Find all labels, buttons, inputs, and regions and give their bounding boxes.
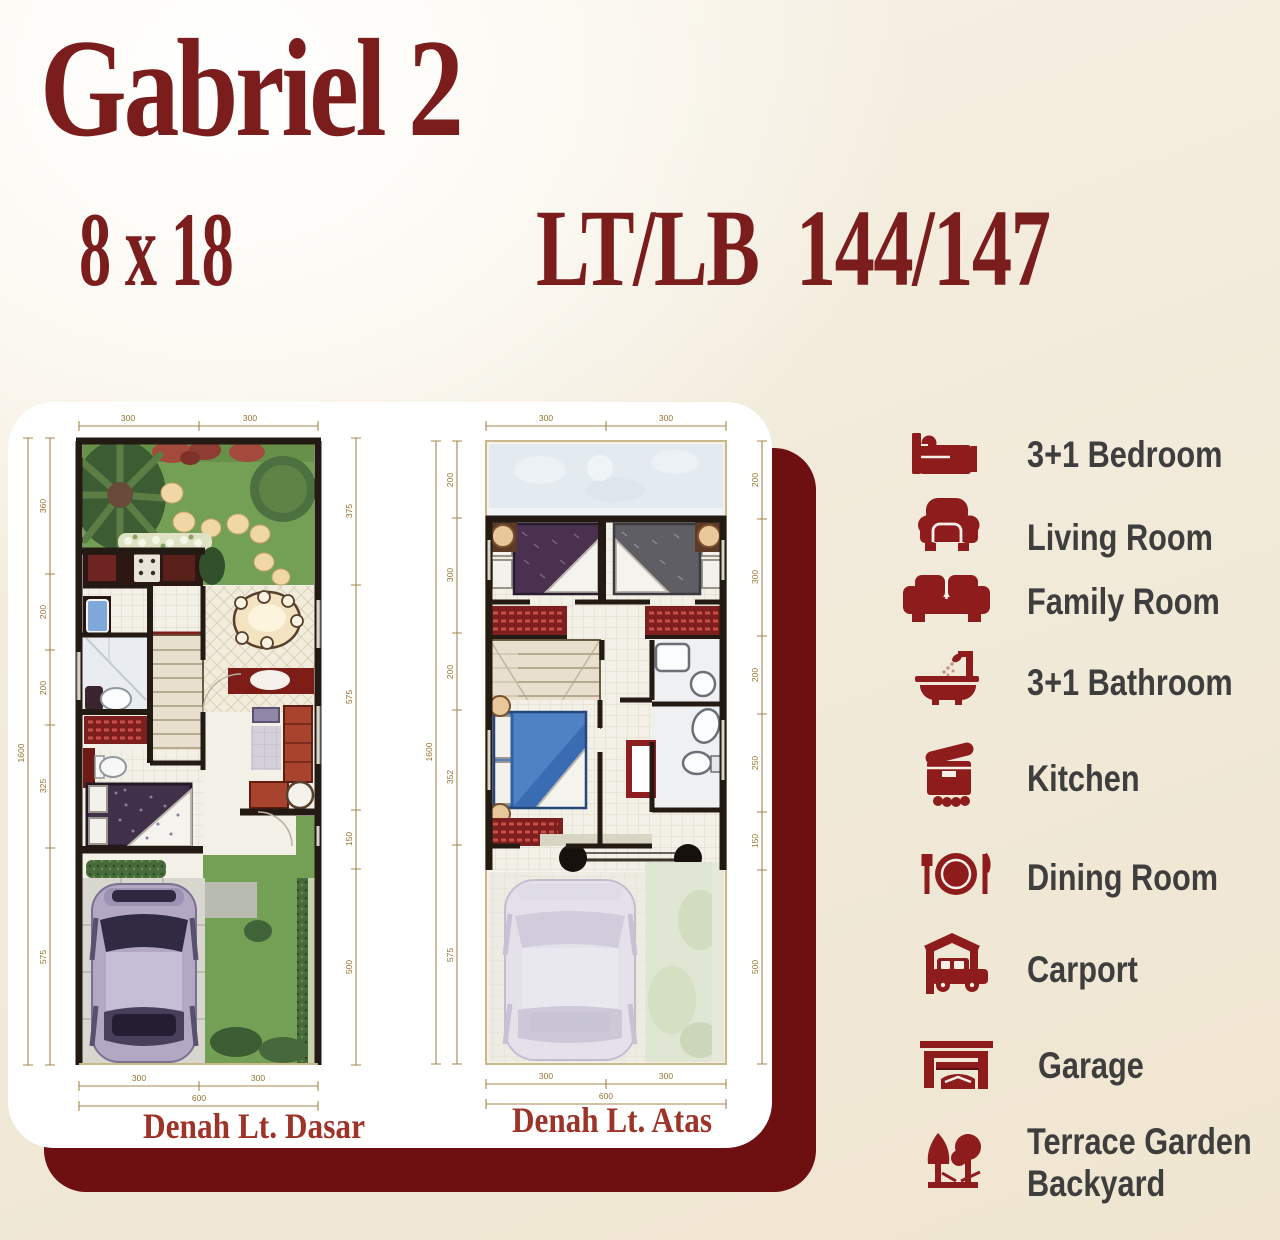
svg-text:200: 200 [38, 605, 48, 619]
svg-text:200: 200 [750, 473, 760, 487]
svg-text:500: 500 [750, 960, 760, 974]
svg-text:300: 300 [659, 1071, 673, 1081]
svg-text:250: 250 [750, 756, 760, 770]
svg-text:Denah Lt. Dasar: Denah Lt. Dasar [143, 1106, 365, 1146]
svg-text:300: 300 [132, 1073, 146, 1083]
svg-text:1600: 1600 [424, 742, 434, 761]
svg-text:Denah Lt. Atas: Denah Lt. Atas [512, 1100, 712, 1140]
svg-text:300: 300 [121, 413, 135, 423]
svg-text:200: 200 [750, 668, 760, 682]
svg-text:300: 300 [659, 413, 673, 423]
svg-text:300: 300 [243, 413, 257, 423]
svg-text:200: 200 [445, 665, 455, 679]
svg-text:360: 360 [38, 499, 48, 513]
svg-text:200: 200 [445, 473, 455, 487]
svg-text:300: 300 [750, 570, 760, 584]
svg-text:325: 325 [38, 779, 48, 793]
svg-text:1600: 1600 [16, 743, 26, 762]
svg-text:300: 300 [539, 413, 553, 423]
svg-text:600: 600 [192, 1093, 206, 1103]
svg-text:575: 575 [38, 950, 48, 964]
svg-text:300: 300 [251, 1073, 265, 1083]
svg-text:352: 352 [445, 770, 455, 784]
svg-text:575: 575 [445, 948, 455, 962]
svg-text:575: 575 [344, 690, 354, 704]
svg-text:500: 500 [344, 960, 354, 974]
svg-text:300: 300 [445, 568, 455, 582]
svg-text:375: 375 [344, 504, 354, 518]
svg-text:200: 200 [38, 681, 48, 695]
svg-text:150: 150 [750, 834, 760, 848]
svg-text:150: 150 [344, 832, 354, 846]
svg-text:300: 300 [539, 1071, 553, 1081]
